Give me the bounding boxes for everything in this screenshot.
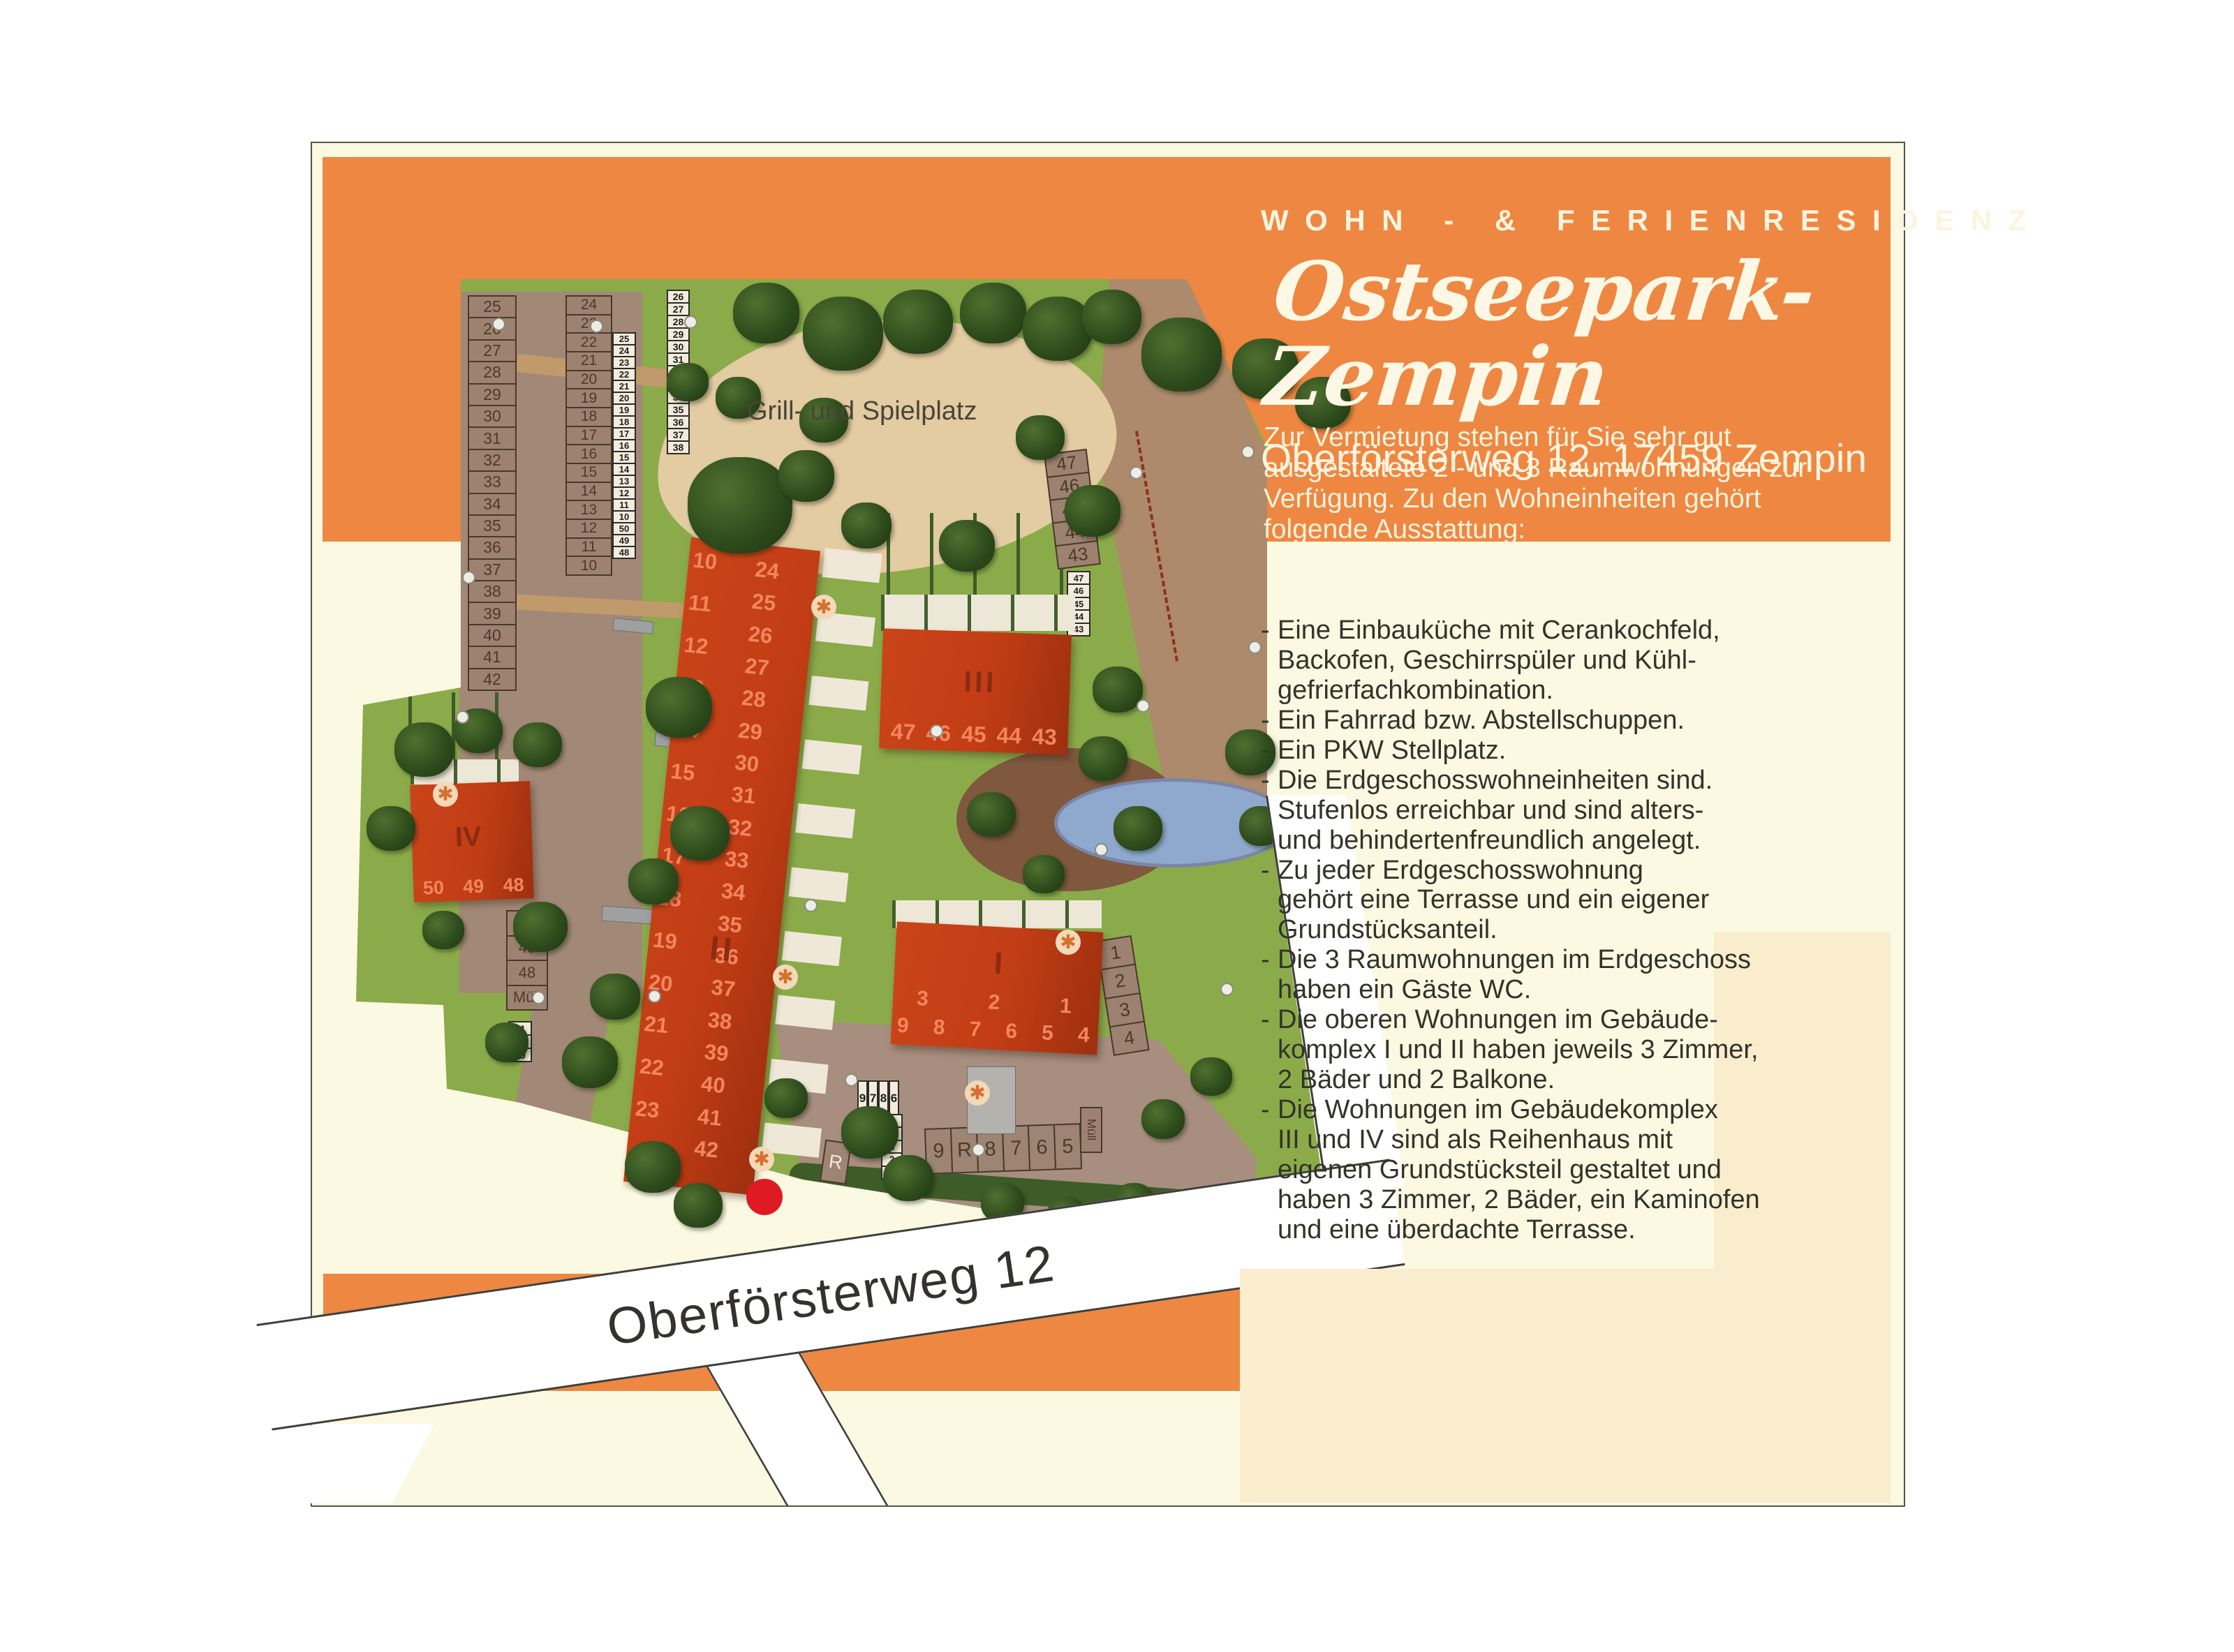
unit-number: 41: [697, 1103, 723, 1131]
unit-number: 45: [961, 721, 986, 747]
tree-icon: [1093, 667, 1143, 713]
flower-icon: ✱: [773, 965, 798, 990]
lamp-post-icon: [532, 991, 545, 1004]
tree-icon: [1016, 415, 1065, 460]
lamp-post-icon: [1095, 843, 1108, 856]
flower-icon: ✱: [1056, 930, 1081, 955]
numbers-strip-inner: 25242322212019181716151413121110504948: [612, 334, 636, 533]
parking-stall: 40: [468, 624, 517, 647]
building-III: III 4746454443: [879, 628, 1072, 754]
tree-icon: [646, 677, 712, 738]
unit-number: 21: [643, 1011, 670, 1039]
unit-number: 50: [422, 877, 444, 899]
parking-stall: 21: [565, 351, 612, 371]
feature-list: Eine Einbauküche mit Cerankochfeld, Back…: [1257, 616, 1871, 1245]
parking-stall: 28: [468, 361, 517, 384]
building-IV-label: IV: [454, 821, 482, 854]
unit-number: 33: [723, 847, 750, 874]
unit-number: 44: [996, 722, 1022, 749]
site-plan: Grill- und Spielplatz 252627282930313233…: [356, 279, 1354, 1263]
tree-icon: [1190, 1057, 1232, 1096]
parking-stall: 13: [565, 500, 612, 520]
muell-label: Müll: [1080, 1107, 1102, 1153]
strip-cell: 37: [667, 428, 690, 442]
unit-number: 25: [750, 589, 777, 616]
unit-number: 34: [720, 879, 746, 906]
unit-number: 32: [727, 814, 753, 842]
unit-number: 23: [634, 1096, 660, 1123]
unit-number: 22: [639, 1054, 665, 1081]
unit-number: 9: [896, 1014, 909, 1039]
location-marker: [746, 1179, 783, 1215]
tree-icon: [422, 911, 464, 949]
lamp-post-icon: [462, 571, 475, 584]
parking-stall: 32: [468, 449, 517, 472]
tree-icon: [967, 792, 1016, 837]
feature-item: Die oberen Wohnungen im Gebäude- komplex…: [1257, 1005, 1871, 1095]
parking-stall: 42: [468, 668, 517, 691]
feature-item: Zu jeder Erdgeschosswohnung gehört eine …: [1257, 856, 1871, 946]
unit-number: 2: [988, 990, 1000, 1015]
unit-number: 4: [1077, 1023, 1090, 1048]
unit-number: 31: [730, 782, 757, 809]
unit-number: 27: [744, 653, 770, 680]
lamp-post-icon: [930, 724, 943, 738]
tree-icon: [1023, 297, 1093, 361]
parking-stall: 12: [565, 519, 612, 539]
tree-icon: [841, 1106, 898, 1159]
tree-icon: [1114, 806, 1162, 851]
unit-number: 30: [734, 750, 760, 777]
parking-stall: 48: [506, 960, 548, 986]
feature-item: Eine Einbauküche mit Cerankochfeld, Back…: [1257, 616, 1871, 706]
muell-stall-south: Müll: [1080, 1108, 1102, 1153]
tree-icon: [764, 1078, 808, 1118]
unit-number: 5: [1041, 1021, 1053, 1045]
flower-icon: ✱: [749, 1147, 774, 1172]
lamp-post-icon: [1241, 445, 1255, 459]
parking-stall: 24: [565, 295, 612, 315]
unit-number: 28: [740, 685, 767, 713]
tree-icon: [688, 457, 792, 553]
lamp-post-icon: [492, 318, 505, 331]
parking-stall: 38: [468, 580, 517, 603]
unit-number: 3: [916, 987, 929, 1011]
tree-icon: [513, 722, 562, 767]
building-I-top-numbers: 321: [916, 987, 1072, 1019]
header-kicker: WOHN - & FERIENRESIDENZ: [1261, 204, 1893, 237]
parking-stall: 22: [565, 332, 612, 352]
playground-label: Grill- und Spielplatz: [747, 396, 977, 426]
parking-stall: 18: [565, 407, 612, 427]
unit-number: 6: [1005, 1020, 1017, 1044]
parking-stall: 11: [565, 537, 612, 558]
parking-stall: 4: [1109, 1020, 1149, 1056]
tree-icon: [939, 520, 995, 572]
tree-icon: [841, 503, 892, 549]
page-title: Ostseepark-Zempin: [1261, 250, 1911, 420]
tree-icon: [803, 297, 883, 371]
tree-icon: [1141, 318, 1222, 392]
unit-number: 19: [652, 927, 679, 954]
parking-stall: 23: [565, 314, 612, 334]
lamp-post-icon: [590, 320, 603, 333]
tree-icon: [562, 1036, 618, 1088]
tree-icon: [590, 974, 640, 1020]
lamp-post-icon: [1220, 983, 1234, 996]
strip-cell: 29: [667, 327, 690, 341]
lamp-post-icon: [804, 899, 818, 912]
intro-paragraph: Zur Vermietung stehen für Sie sehr gut a…: [1264, 422, 1864, 545]
lamp-post-icon: [1130, 466, 1143, 479]
tree-icon: [1023, 855, 1065, 893]
tree-icon: [733, 283, 799, 343]
lamp-post-icon: [456, 710, 469, 724]
unit-number: 10: [692, 548, 718, 575]
tree-icon: [667, 363, 709, 401]
unit-number: 7: [969, 1018, 982, 1042]
parking-column-west: 252627282930313233343536373839404142: [468, 297, 517, 691]
parking-stall: 41: [468, 646, 517, 669]
parking-stall: 27: [468, 339, 517, 362]
unit-number: 12: [683, 632, 709, 659]
parking-stall: 31: [468, 426, 517, 449]
parking-stall: 17: [565, 426, 612, 446]
tree-icon: [1065, 485, 1120, 537]
garden-strip-III: [881, 595, 1075, 631]
parking-stall: 29: [468, 383, 517, 406]
tree-icon: [1141, 1099, 1185, 1139]
unit-number: 11: [687, 590, 713, 617]
building-III-label: III: [963, 664, 998, 699]
unit-number: 37: [710, 975, 737, 1002]
strip-cell: 47: [1067, 571, 1090, 585]
parking-stall: 43: [1055, 540, 1101, 570]
unit-number: 40: [700, 1071, 726, 1099]
parking-stall: 33: [468, 470, 517, 493]
strip-cell: 26: [667, 290, 690, 304]
unit-number: 15: [670, 759, 696, 786]
peach-panel-bottom: [1240, 1269, 1890, 1503]
tree-icon: [513, 902, 568, 952]
tree-icon: [628, 858, 679, 905]
parking-stall: 16: [565, 444, 612, 464]
unit-number: 48: [503, 874, 524, 896]
unit-number: 49: [463, 875, 484, 898]
parking-stall: 20: [565, 370, 612, 390]
strip-cell: 48: [612, 546, 636, 559]
building-I-bottom-numbers: 987654: [896, 1014, 1090, 1048]
feature-item: Die Erdgeschosswohneinheiten sind. Stufe…: [1257, 766, 1871, 856]
tree-icon: [670, 806, 730, 861]
strip-cell: 30: [667, 340, 690, 354]
unit-number: 38: [707, 1007, 733, 1034]
parking-column-middle: 242322212019181716151413121110: [565, 297, 612, 576]
tree-icon: [1082, 290, 1141, 344]
unit-number: 39: [703, 1039, 730, 1066]
building-IV-numbers: 504948: [413, 874, 534, 900]
parking-stall: 34: [468, 493, 517, 516]
feature-item: Die Wohnungen im Gebäudekomplex III und …: [1257, 1095, 1871, 1245]
building-IV: IV 504948: [410, 781, 534, 902]
flyer-canvas: WOHN - & FERIENRESIDENZ Ostseepark-Zempi…: [0, 0, 2234, 1652]
unit-number: 24: [754, 557, 781, 584]
building-III-numbers: 4746454443: [879, 718, 1068, 750]
lamp-post-icon: [845, 1073, 858, 1087]
strip-cell: 36: [667, 415, 690, 429]
lamp-post-icon: [972, 1143, 985, 1156]
tree-icon: [883, 1155, 933, 1201]
unit-number: 1: [1059, 995, 1072, 1019]
flower-icon: ✱: [811, 595, 836, 620]
parking-stall: 30: [468, 405, 517, 428]
unit-number: 26: [747, 621, 774, 648]
building-I-label: I: [993, 946, 1004, 982]
tree-icon: [394, 722, 454, 777]
tree-icon: [1079, 736, 1127, 781]
feature-item: Die 3 Raumwohnungen im Erdgeschoss haben…: [1257, 945, 1871, 1005]
strip-cell: 6: [889, 1080, 899, 1117]
strip-cell: 38: [667, 440, 690, 454]
strip-cell: 27: [667, 302, 690, 316]
parking-stall: 5: [1053, 1123, 1082, 1170]
tree-icon: [960, 283, 1026, 343]
lamp-post-icon: [648, 990, 661, 1003]
building-II-label: II: [708, 929, 737, 970]
unit-number: 47: [890, 719, 916, 745]
tree-icon: [778, 450, 834, 502]
parking-stall: 35: [468, 514, 517, 537]
tree-icon: [485, 1022, 528, 1062]
flower-icon: ✱: [965, 1080, 990, 1106]
unit-number: 42: [693, 1136, 720, 1163]
parking-stall: 15: [565, 463, 612, 483]
parking-stall: 14: [565, 482, 612, 502]
lamp-post-icon: [684, 315, 697, 329]
tree-icon: [674, 1183, 723, 1228]
unit-number: 43: [1032, 724, 1058, 750]
parking-stall: 25: [468, 295, 517, 318]
tree-icon: [883, 290, 953, 354]
parking-stall: 10: [565, 556, 612, 576]
unit-number: 29: [737, 717, 764, 745]
strip-cell: 35: [667, 403, 690, 417]
parking-stall: 36: [468, 536, 517, 559]
parking-stall: 19: [565, 388, 612, 408]
tree-icon: [625, 1141, 681, 1193]
unit-number: 8: [933, 1015, 945, 1040]
feature-item: Ein Fahrrad bzw. Abstellschuppen.: [1257, 706, 1871, 736]
feature-item: Ein PKW Stellplatz.: [1257, 736, 1871, 766]
parking-stall: 39: [468, 602, 517, 625]
tree-icon: [367, 806, 415, 851]
lamp-post-icon: [1137, 699, 1150, 713]
parking-stall: 6: [1028, 1124, 1056, 1170]
flower-icon: ✱: [433, 782, 458, 807]
